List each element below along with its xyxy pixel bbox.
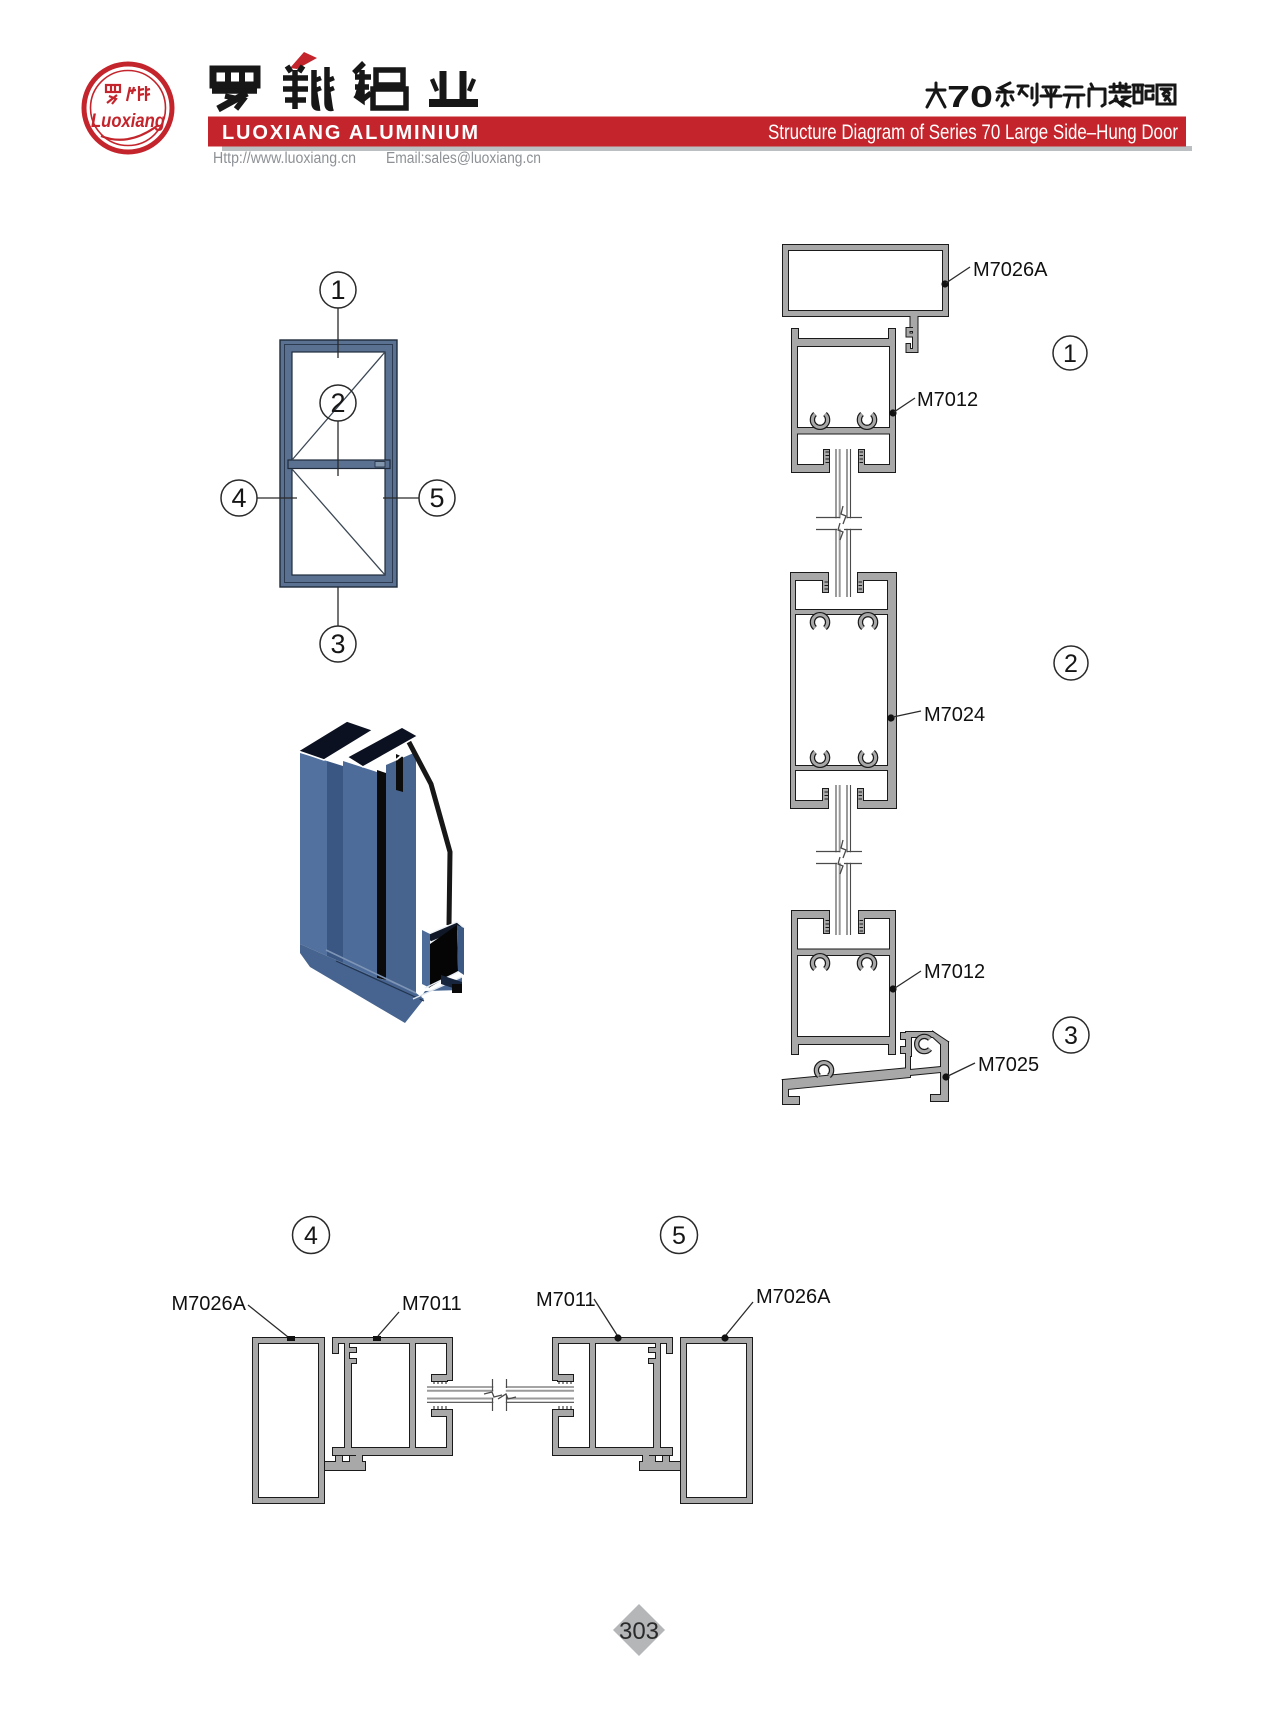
- svg-text:2: 2: [330, 388, 345, 418]
- svg-text:Http://www.luoxiang.cn: Http://www.luoxiang.cn: [213, 150, 356, 167]
- svg-text:5: 5: [429, 483, 444, 513]
- svg-text:Structure Diagram of Series 70: Structure Diagram of Series 70 Large Sid…: [768, 121, 1178, 144]
- svg-text:M7024: M7024: [924, 704, 985, 726]
- svg-text:4: 4: [304, 1222, 318, 1250]
- svg-text:M7011: M7011: [402, 1293, 462, 1315]
- svg-text:4: 4: [231, 483, 246, 513]
- svg-text:M7026A: M7026A: [756, 1286, 831, 1308]
- svg-text:M7025: M7025: [978, 1054, 1039, 1076]
- svg-text:M7026A: M7026A: [973, 259, 1048, 281]
- svg-text:5: 5: [672, 1222, 686, 1250]
- svg-text:M7012: M7012: [917, 389, 978, 411]
- svg-text:3: 3: [1064, 1022, 1078, 1050]
- svg-text:M7026A: M7026A: [172, 1293, 247, 1315]
- svg-text:1: 1: [1063, 340, 1077, 368]
- svg-text:M7012: M7012: [924, 961, 985, 983]
- svg-text:3: 3: [330, 629, 345, 659]
- svg-text:70: 70: [947, 79, 993, 114]
- svg-text:303: 303: [619, 1618, 659, 1645]
- svg-text:M7011: M7011: [536, 1289, 596, 1311]
- svg-text:1: 1: [330, 275, 345, 305]
- svg-text:LUOXIANG ALUMINIUM: LUOXIANG ALUMINIUM: [222, 122, 478, 144]
- svg-text:2: 2: [1064, 650, 1078, 678]
- svg-text:Email:sales@luoxiang.cn: Email:sales@luoxiang.cn: [386, 150, 541, 167]
